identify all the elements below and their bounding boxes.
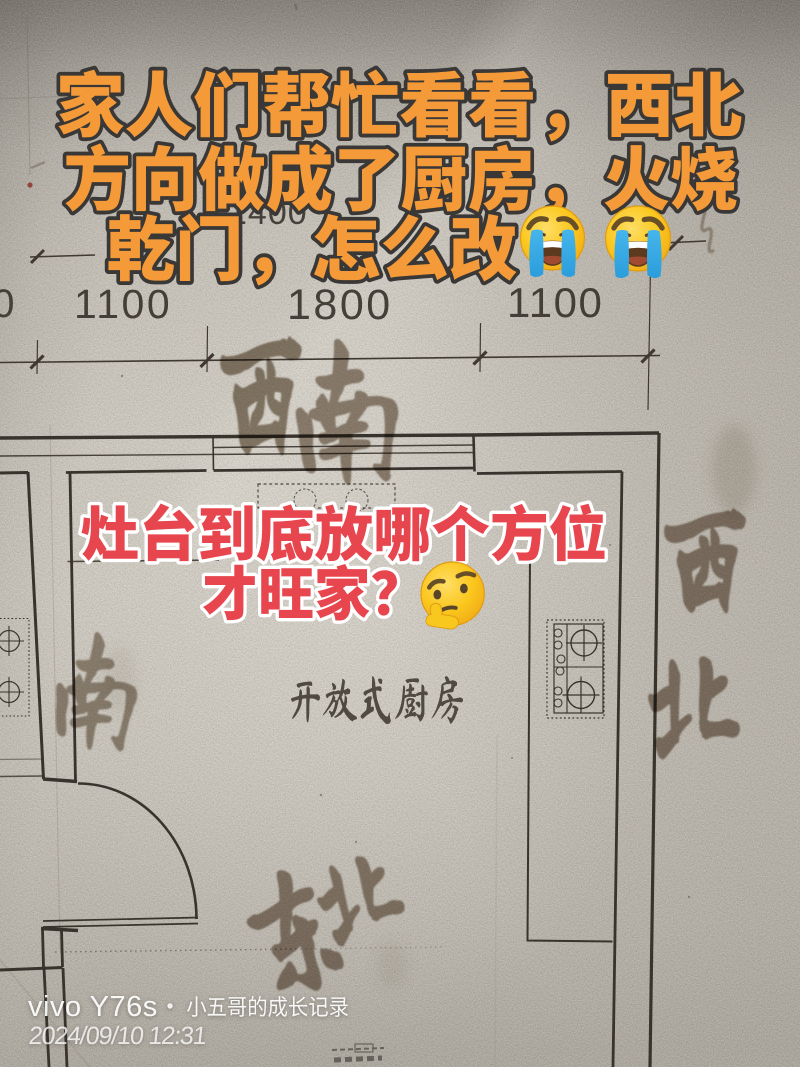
svg-text:2024/09/10 12:31: 2024/09/10 12:31: [27, 1022, 208, 1050]
svg-text:00: 00: [0, 282, 15, 326]
svg-text:1100: 1100: [507, 279, 603, 326]
svg-text:1800: 1800: [287, 281, 393, 329]
svg-text:vivo Y76s: vivo Y76s: [28, 991, 158, 1023]
svg-text:1100: 1100: [74, 281, 172, 327]
